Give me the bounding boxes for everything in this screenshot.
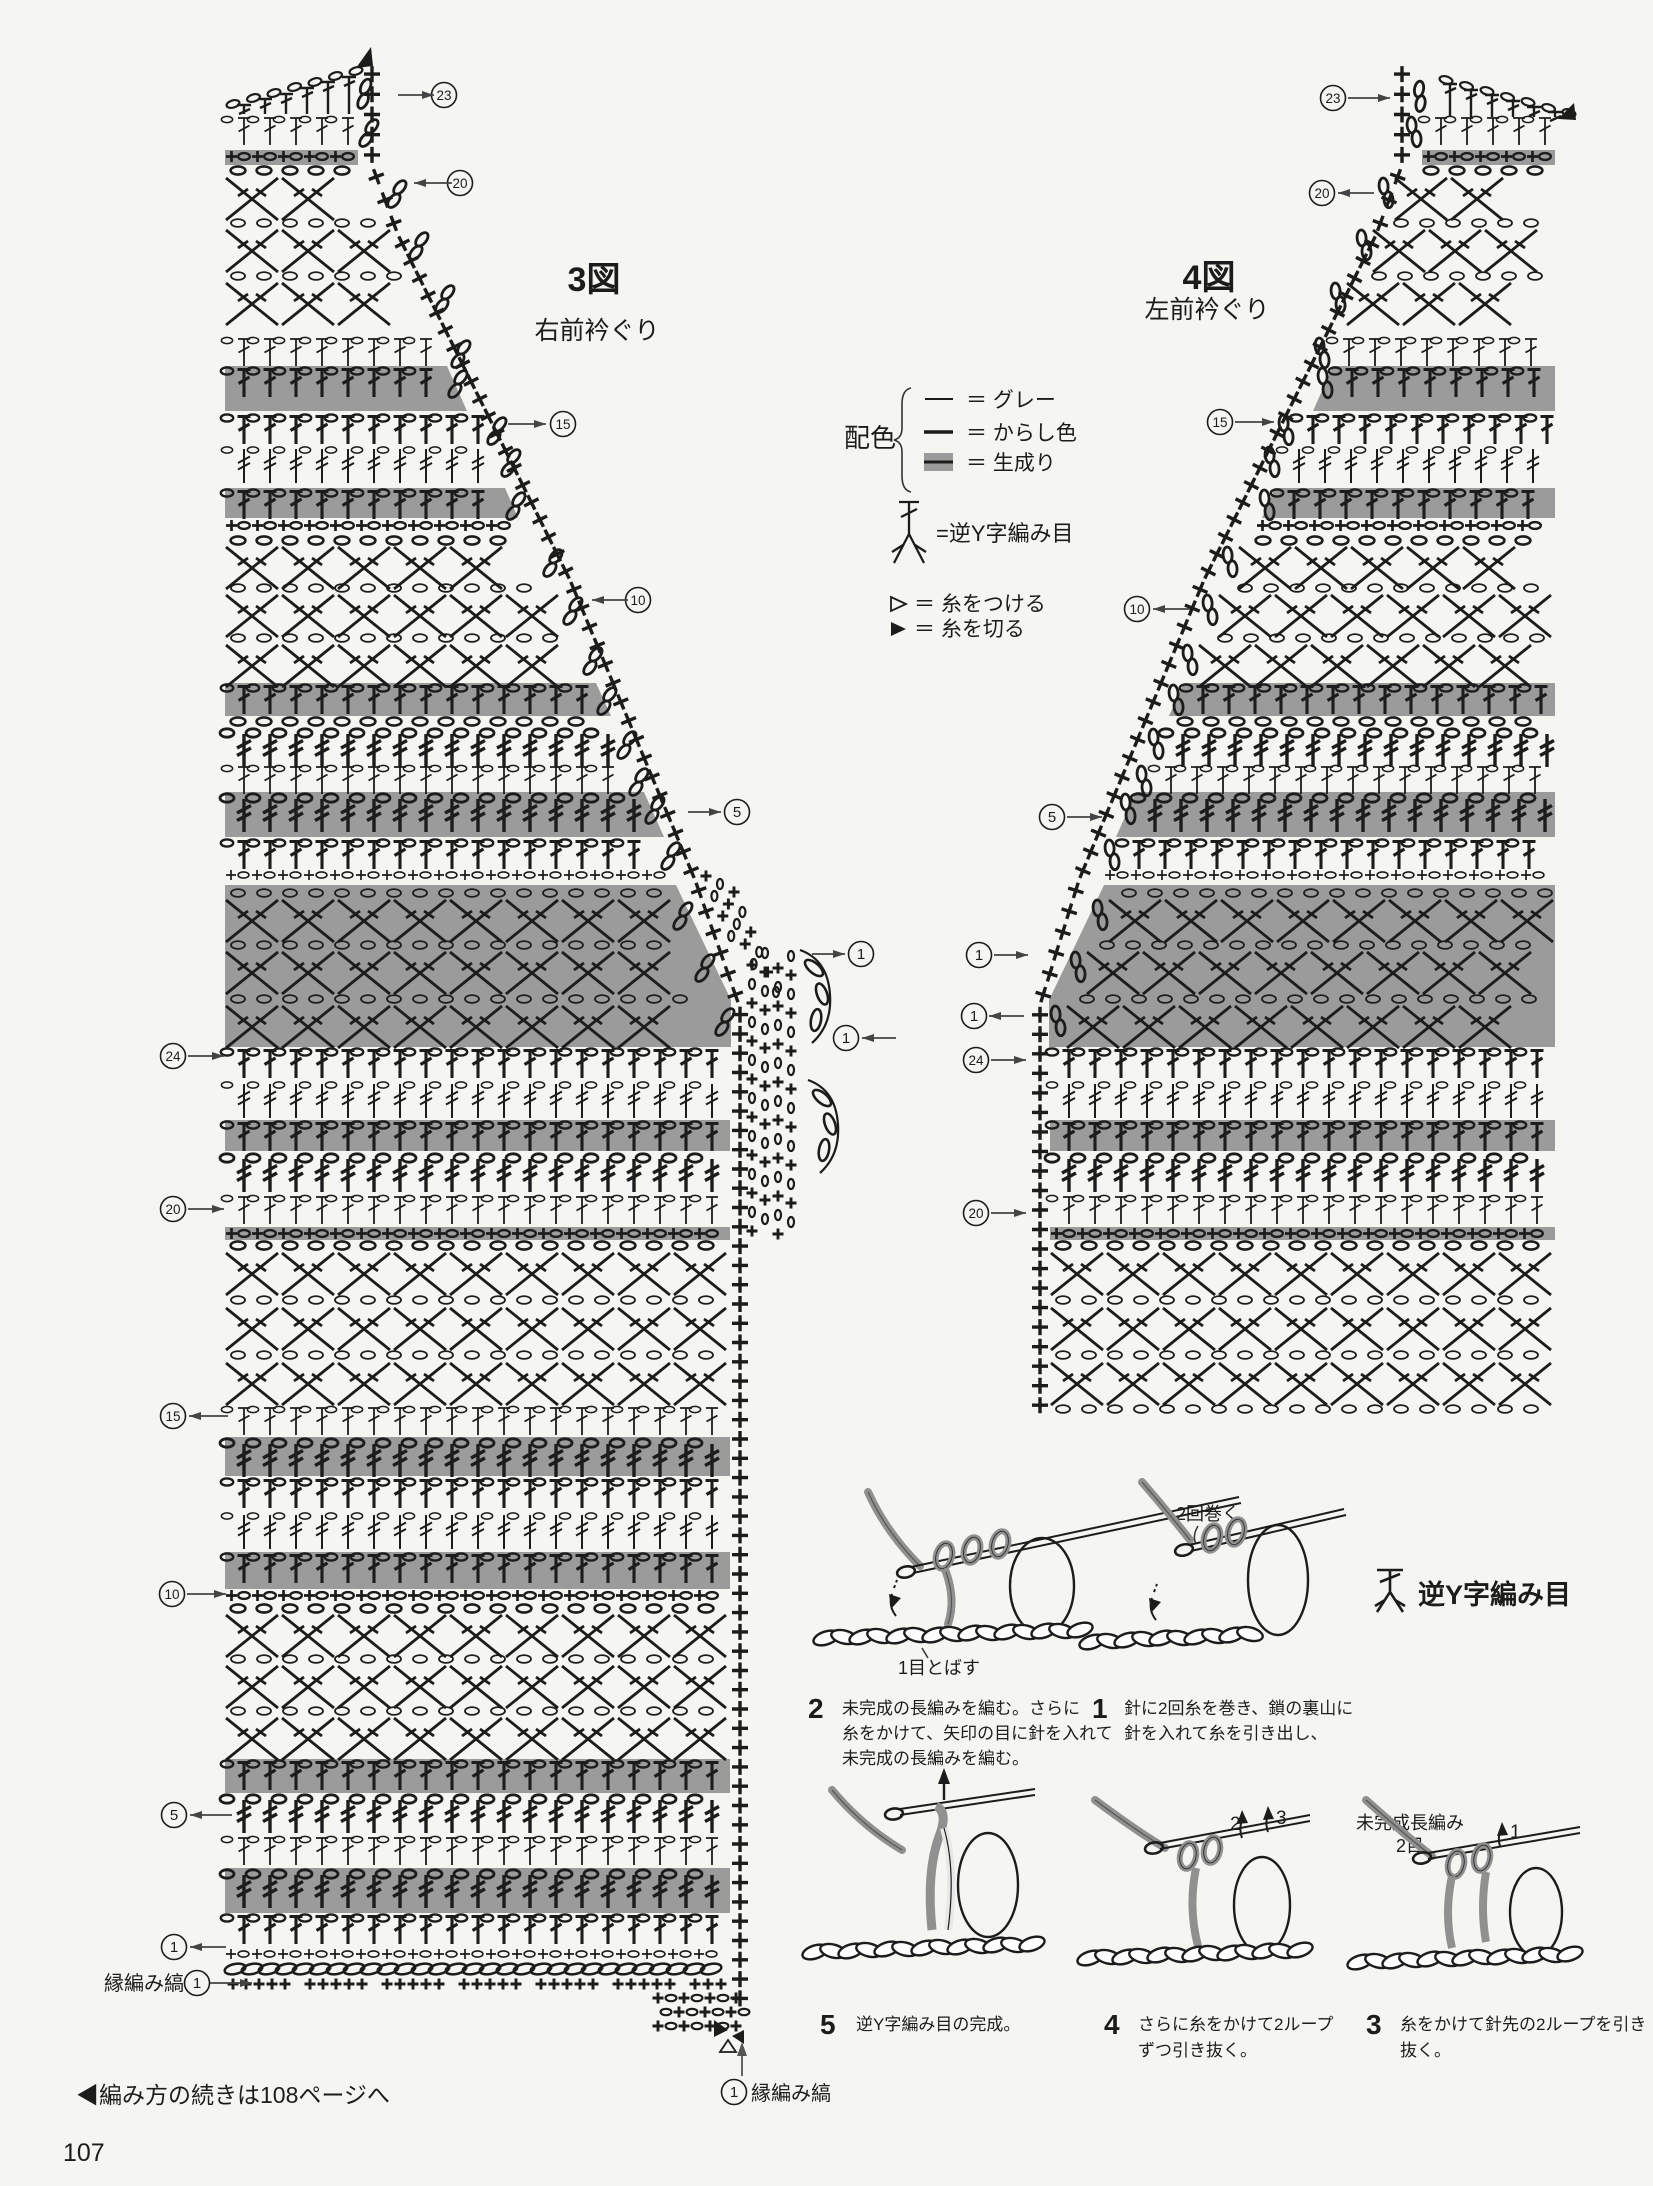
svg-text:=逆Y字編み目: =逆Y字編み目 (936, 521, 1074, 546)
svg-text:20: 20 (968, 1206, 983, 1221)
svg-text:107: 107 (63, 2139, 105, 2167)
svg-text:5: 5 (170, 1807, 178, 1824)
svg-text:◀編み方の続きは108ページへ: ◀編み方の続きは108ページへ (76, 2082, 390, 2108)
svg-text:糸をかけて針先の2ループを引き: 糸をかけて針先の2ループを引き (1400, 2015, 1646, 2034)
svg-text:1: 1 (842, 1030, 850, 1047)
svg-text:1: 1 (193, 1975, 201, 1992)
svg-text:20: 20 (165, 1202, 180, 1217)
svg-text:23: 23 (1325, 91, 1340, 106)
svg-text:3: 3 (1276, 1808, 1287, 1829)
svg-text:＝ 糸をつける: ＝ 糸をつける (914, 593, 1046, 616)
svg-text:15: 15 (165, 1409, 180, 1424)
svg-text:＝ 糸を切る: ＝ 糸を切る (914, 618, 1025, 641)
svg-text:20: 20 (1314, 186, 1329, 201)
svg-text:1: 1 (857, 946, 865, 963)
svg-text:5: 5 (820, 2009, 836, 2040)
svg-text:左前衿ぐり: 左前衿ぐり (1144, 296, 1269, 324)
svg-text:逆Y字編み目: 逆Y字編み目 (1418, 1579, 1571, 1610)
svg-text:＝ からし色: ＝ からし色 (966, 422, 1077, 445)
svg-text:未完成の長編みを編む。: 未完成の長編みを編む。 (842, 1749, 1029, 1768)
svg-text:2: 2 (808, 1693, 824, 1724)
svg-text:2: 2 (1230, 1814, 1241, 1835)
svg-text:未完成長編み: 未完成長編み (1356, 1813, 1464, 1833)
svg-text:1: 1 (170, 1939, 178, 1956)
svg-text:1: 1 (970, 1008, 978, 1025)
svg-text:配色: 配色 (844, 423, 896, 453)
svg-text:1: 1 (1510, 1822, 1521, 1843)
svg-text:24: 24 (968, 1053, 984, 1068)
svg-text:1目とばす: 1目とばす (898, 1658, 980, 1678)
svg-text:未完成の長編みを編む。さらに: 未完成の長編みを編む。さらに (842, 1699, 1080, 1718)
svg-text:3: 3 (1366, 2009, 1382, 2040)
svg-text:＝ 生成り: ＝ 生成り (966, 452, 1056, 475)
svg-text:縁編み縞: 縁編み縞 (104, 1972, 184, 1995)
svg-text:4: 4 (1104, 2009, 1120, 2040)
svg-text:1: 1 (975, 947, 983, 964)
svg-text:針を入れて糸を引き出し、: 針を入れて糸を引き出し、 (1124, 1724, 1328, 1743)
svg-text:1: 1 (1092, 1693, 1108, 1724)
svg-text:ずつ引き抜く。: ずつ引き抜く。 (1138, 2041, 1257, 2060)
svg-text:5: 5 (1048, 809, 1056, 826)
svg-text:針に2回糸を巻き、鎖の裏山に: 針に2回糸を巻き、鎖の裏山に (1124, 1698, 1353, 1718)
svg-text:10: 10 (1129, 602, 1144, 617)
svg-text:1: 1 (730, 2084, 738, 2101)
svg-text:＝ グレー: ＝ グレー (966, 389, 1056, 412)
svg-text:3図: 3図 (568, 261, 621, 299)
svg-text:縁編み縞: 縁編み縞 (751, 2082, 831, 2105)
svg-text:右前衿ぐり: 右前衿ぐり (534, 317, 659, 345)
svg-text:逆Y字編み目の完成。: 逆Y字編み目の完成。 (856, 2015, 1020, 2034)
svg-text:23: 23 (436, 88, 451, 103)
svg-text:5: 5 (733, 804, 741, 821)
svg-text:さらに糸をかけて2ループ: さらに糸をかけて2ループ (1138, 2015, 1333, 2034)
svg-text:抜く。: 抜く。 (1400, 2041, 1451, 2060)
svg-text:24: 24 (165, 1049, 181, 1064)
svg-text:10: 10 (630, 593, 645, 608)
svg-text:15: 15 (555, 417, 570, 432)
svg-text:4図: 4図 (1183, 259, 1236, 297)
svg-text:10: 10 (164, 1587, 179, 1602)
svg-text:15: 15 (1212, 415, 1227, 430)
svg-text:20: 20 (452, 176, 467, 191)
svg-text:糸をかけて、矢印の目に針を入れて: 糸をかけて、矢印の目に針を入れて (842, 1724, 1113, 1743)
